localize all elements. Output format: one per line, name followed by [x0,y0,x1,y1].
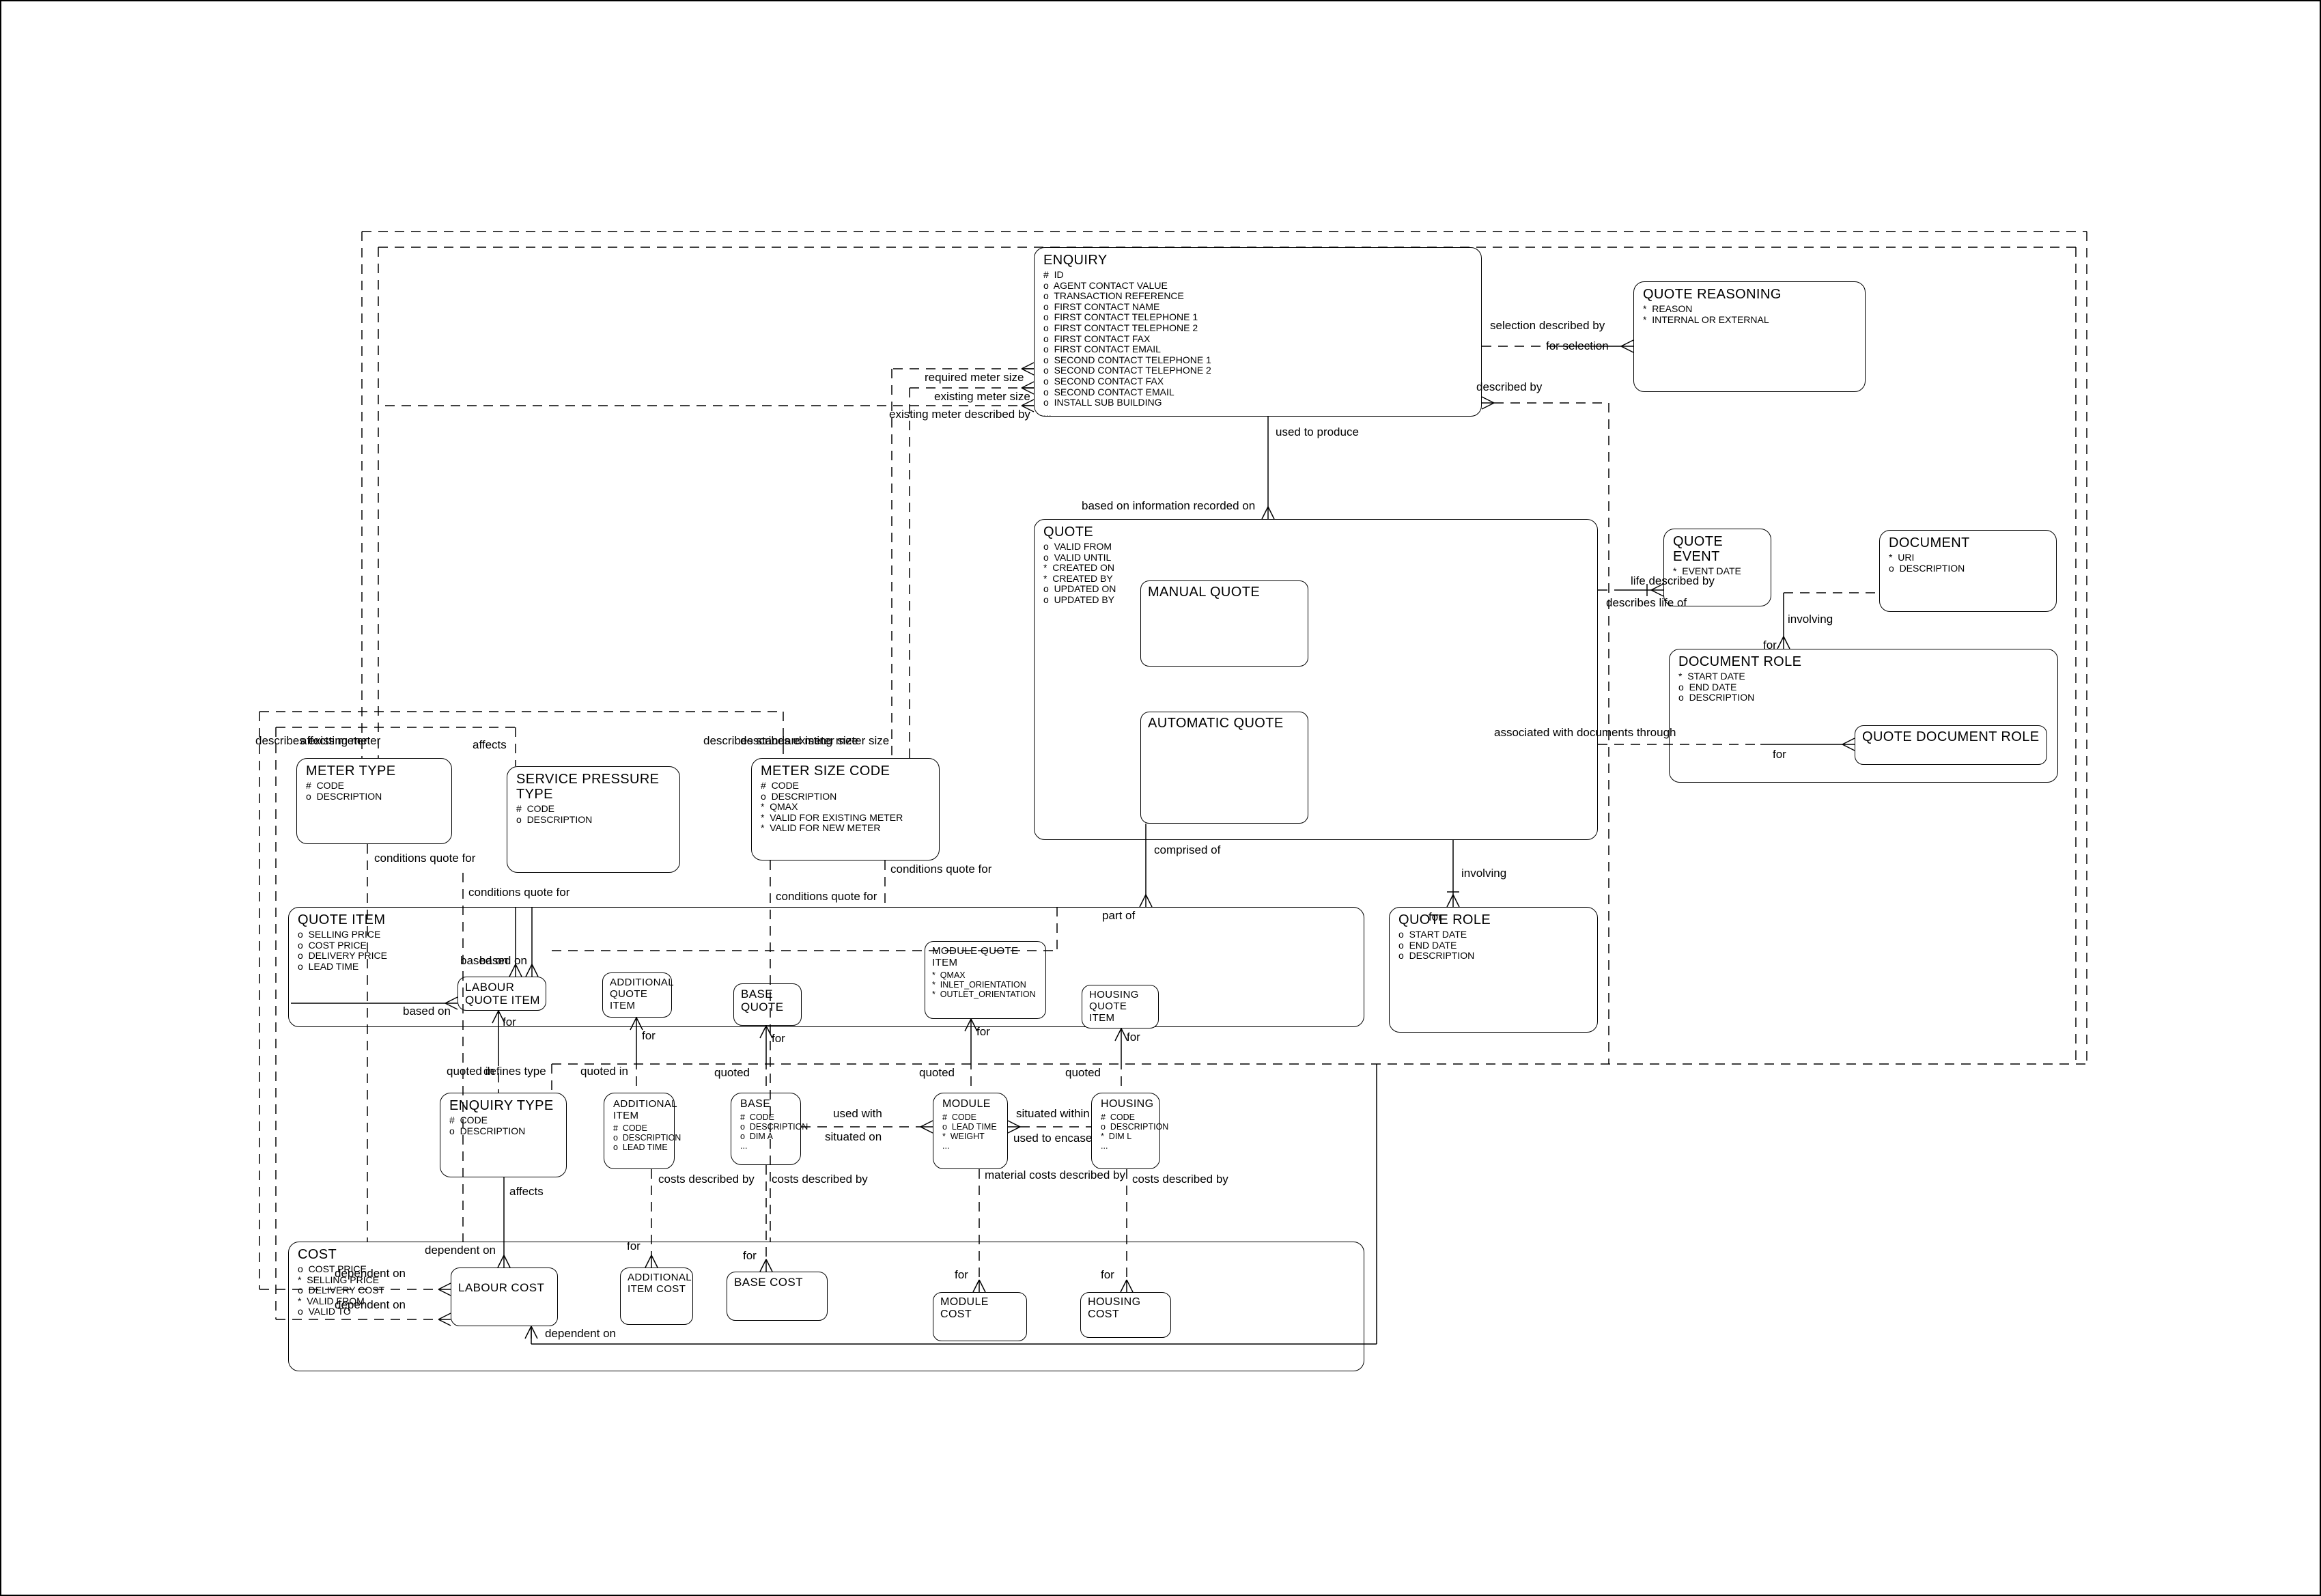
entity-attribute: # ID [1043,270,1476,281]
entity-attribute: o VALID FROM [1043,542,1592,552]
entity-quote: QUOTE o VALID FROMo VALID UNTIL* CREATED… [1034,519,1598,840]
relationship-label: comprised of [1154,844,1220,856]
relationship-label: dependent on [335,1268,406,1280]
entity-attribute: * WEIGHT [942,1132,1002,1141]
relationship-label: described by [1476,381,1542,393]
relationship-label: based on information recorded on [1082,500,1255,512]
entity-meter-type: METER TYPE # CODEo DESCRIPTION [296,758,452,844]
relationship-label: for [1763,639,1777,652]
entity-title: SERVICE PRESSURE TYPE [516,772,674,802]
entity-attribute: o DESCRIPTION [761,792,933,802]
entity-attributes: o SELLING PRICEo COST PRICEo DELIVERY PR… [298,929,1358,972]
relationship-label: selection described by [1490,320,1605,332]
entity-title: QUOTE ITEM [298,912,1358,927]
relationship-label: existing meter size [934,391,1030,403]
er-diagram-canvas: ENQUIRY # IDo AGENT CONTACT VALUEo TRANS… [0,0,2321,1596]
entity-attribute: ... [1043,408,1476,419]
entity-attributes: # CODEo DESCRIPTION [516,804,674,825]
relationship-label: affects [473,739,507,751]
relationship-label: part of [1102,910,1135,922]
relationship-label: affects [509,1186,544,1198]
relationship-label: affects meter [300,735,367,747]
entity-title: ADDITIONAL QUOTE ITEM [610,977,667,1011]
entity-housing: HOUSING # CODEo DESCRIPTION* DIM L... [1091,1093,1160,1169]
entity-attributes: * START DATEo END DATEo DESCRIPTION [1678,671,2052,703]
entity-attributes: # CODEo DESCRIPTIONo LEAD TIME [613,1123,669,1152]
entity-attribute: o FIRST CONTACT EMAIL [1043,344,1476,355]
entity-meter-size-code: METER SIZE CODE # CODEo DESCRIPTION* QMA… [751,758,940,860]
entity-attribute: o DESCRIPTION [1398,951,1592,962]
relationship-label: costs described by [1132,1173,1228,1186]
entity-additional-item: ADDITIONAL ITEM # CODEo DESCRIPTIONo LEA… [604,1093,675,1169]
entity-module-quote-item: MODULE QUOTE ITEM * QMAX* INLET_ORIENTAT… [925,941,1046,1019]
entity-title: METER SIZE CODE [761,764,933,779]
entity-attribute: * INTERNAL OR EXTERNAL [1643,315,1859,326]
entity-title: LABOUR QUOTE ITEM [465,981,541,1007]
entity-attribute: o UPDATED BY [1043,595,1592,606]
entity-title: MODULE COST [940,1296,1022,1321]
relationship-label: dependent on [545,1328,616,1340]
relationship-label: based on [403,1005,451,1018]
relationship-label: for [976,1026,990,1038]
relationship-label: situated within [1016,1108,1090,1120]
entity-attribute: * START DATE [1678,671,2052,682]
entity-attribute: ... [740,1141,795,1151]
entity-title: BASE COST [734,1276,823,1289]
entity-attribute: o SECOND CONTACT FAX [1043,376,1476,387]
entity-attribute: o END DATE [1678,682,2052,693]
entity-service-pressure-type: SERVICE PRESSURE TYPE # CODEo DESCRIPTIO… [507,766,680,873]
entity-module: MODULE # CODEo LEAD TIME* WEIGHT... [933,1093,1008,1169]
entity-attribute: ... [1101,1141,1154,1151]
relationship-label: associated with documents through [1494,727,1676,739]
entity-attribute: o DESCRIPTION [1101,1122,1154,1132]
relationship-label: used to produce [1276,426,1359,438]
entity-title: HOUSING [1101,1098,1154,1110]
relationship-label: quoted [714,1067,750,1079]
entity-title: HOUSING COST [1088,1296,1166,1321]
entity-attribute: o LEAD TIME [298,962,1358,972]
entity-quote-reasoning: QUOTE REASONING * REASON* INTERNAL OR EX… [1633,281,1866,392]
entity-attribute: o LEAD TIME [613,1143,669,1152]
entity-attribute: o DESCRIPTION [1889,563,2051,574]
entity-attributes: o START DATEo END DATEo DESCRIPTION [1398,929,1592,962]
entity-attribute: ... [942,1141,1002,1151]
entity-attribute: * DIM L [1101,1132,1154,1141]
entity-attribute: # CODE [306,781,446,792]
relationship-label: dependent on [425,1244,496,1257]
relationship-label: required meter size [925,372,1024,384]
entity-title: HOUSING QUOTE ITEM [1089,989,1154,1024]
entity-title: ADDITIONAL ITEM COST [628,1272,688,1295]
relationship-label: used to encase [1013,1132,1092,1145]
relationship-label: used with [833,1108,882,1120]
entity-attribute: o AGENT CONTACT VALUE [1043,281,1476,292]
relationship-label: for [955,1269,968,1281]
relationship-label: quoted [919,1067,955,1079]
relationship-label: dependent on [335,1299,406,1311]
entity-title: MODULE QUOTE ITEM [932,945,1041,968]
entity-module-cost: MODULE COST [933,1292,1027,1341]
entity-attribute: # CODE [1101,1112,1154,1122]
entity-attribute: # CODE [761,781,933,792]
relationship-label: life described by [1631,575,1715,587]
entity-attributes: # CODEo DESCRIPTION* QMAX* VALID FOR EXI… [761,781,933,834]
entity-attribute: o SECOND CONTACT EMAIL [1043,387,1476,398]
entity-attribute: o VALID UNTIL [1043,552,1592,563]
entity-base-cost: BASE COST [727,1272,828,1321]
entity-base-quote: BASE QUOTE [733,983,802,1026]
entity-manual-quote: MANUAL QUOTE [1140,580,1308,667]
entity-attribute: o FIRST CONTACT TELEPHONE 2 [1043,323,1476,334]
relationship-label: costs described by [658,1173,755,1186]
entity-attributes: # CODEo DESCRIPTION* DIM L... [1101,1112,1154,1151]
entity-attributes: * URIo DESCRIPTION [1889,552,2051,574]
relationship-label: for [1101,1269,1114,1281]
entity-attribute: # CODE [740,1112,795,1122]
entity-attribute: o DESCRIPTION [613,1133,669,1143]
entity-attribute: o END DATE [1398,940,1592,951]
entity-attribute: o UPDATED ON [1043,584,1592,595]
entity-title: QUOTE DOCUMENT ROLE [1862,729,2042,744]
entity-additional-item-cost: ADDITIONAL ITEM COST [620,1268,693,1325]
entity-attribute: o COST PRICE [298,940,1358,951]
entity-title: QUOTE EVENT [1673,534,1765,564]
entity-attribute: * VALID FOR EXISTING METER [761,813,933,824]
entity-title: BASE QUOTE [741,988,797,1013]
relationship-label: for [627,1240,641,1252]
entity-quote-role: QUOTE ROLE o START DATEo END DATEo DESCR… [1389,907,1598,1033]
entity-attribute: * QMAX [761,802,933,813]
entity-title: METER TYPE [306,764,446,779]
relationship-label: situated on [825,1131,882,1143]
entity-attribute: o DIM A [740,1132,795,1141]
entity-attribute: # CODE [613,1123,669,1133]
entity-title: ENQUIRY TYPE [449,1098,561,1113]
relationship-label: based on [479,955,527,967]
entity-title: BASE [740,1098,795,1110]
entity-title: QUOTE ROLE [1398,912,1592,927]
entity-attribute: o DESCRIPTION [740,1122,795,1132]
entity-document: DOCUMENT * URIo DESCRIPTION [1879,530,2057,612]
entity-attributes: o VALID FROMo VALID UNTIL* CREATED ON* C… [1043,542,1592,606]
entity-attribute: o SELLING PRICE [298,929,1358,940]
entity-attribute: o START DATE [1398,929,1592,940]
entity-attribute: o DESCRIPTION [1678,692,2052,703]
entity-attribute: * INLET_ORIENTATION [932,980,1041,990]
relationship-label: for [642,1030,656,1042]
relationship-label: conditions quote for [374,852,475,865]
entity-attribute: * CREATED BY [1043,574,1592,585]
entity-labour-cost: LABOUR COST [451,1268,558,1326]
entity-attributes: # CODEo LEAD TIME* WEIGHT... [942,1112,1002,1151]
entity-additional-quote-item: ADDITIONAL QUOTE ITEM [602,972,672,1018]
entity-attribute: * URI [1889,552,2051,563]
entity-attribute: o TRANSACTION REFERENCE [1043,291,1476,302]
entity-base: BASE # CODEo DESCRIPTIONo DIM A... [731,1093,801,1165]
entity-title: DOCUMENT ROLE [1678,654,2052,669]
relationship-label: for [503,1016,516,1028]
entity-attribute: o DESCRIPTION [449,1126,561,1137]
entity-attribute: * REASON [1643,304,1859,315]
relationship-label: costs described by [772,1173,868,1186]
entity-attribute: o DESCRIPTION [306,792,446,802]
relationship-label: describes life of [1606,597,1687,609]
relationship-label: for [772,1033,785,1045]
entity-title: ADDITIONAL ITEM [613,1098,669,1121]
entity-attribute: # CODE [516,804,674,815]
entity-title: ENQUIRY [1043,253,1476,268]
entity-title: DOCUMENT [1889,535,2051,550]
entity-title: AUTOMATIC QUOTE [1148,716,1304,731]
entity-enquiry-type: ENQUIRY TYPE # CODEo DESCRIPTION [440,1093,567,1177]
relationship-label: material costs described by [985,1169,1125,1181]
relationship-label: for [1429,911,1442,923]
entity-attributes: * QMAX* INLET_ORIENTATION* OUTLET_ORIENT… [932,970,1041,999]
relationship-label: for [743,1250,757,1262]
entity-attribute: * OUTLET_ORIENTATION [932,990,1041,999]
relationship-label: quoted in [580,1065,628,1078]
entity-labour-quote-item: LABOUR QUOTE ITEM [458,977,546,1011]
relationship-label: involving [1461,867,1506,880]
relationship-label: involving [1788,613,1833,626]
entity-attributes: # CODEo DESCRIPTION [306,781,446,802]
entity-title: MODULE [942,1098,1002,1110]
entity-attribute: * VALID FOR NEW METER [761,823,933,834]
relationship-label: conditions quote for [468,886,569,899]
entity-housing-cost: HOUSING COST [1080,1292,1171,1338]
entity-housing-quote-item: HOUSING QUOTE ITEM [1082,985,1159,1028]
entity-attributes: # CODEo DESCRIPTION [449,1115,561,1136]
entity-enquiry: ENQUIRY # IDo AGENT CONTACT VALUEo TRANS… [1034,247,1482,417]
entity-attribute: o DELIVERY PRICE [298,951,1358,962]
entity-attribute: # CODE [942,1112,1002,1122]
entity-title: LABOUR COST [458,1281,553,1294]
entity-attribute: o FIRST CONTACT NAME [1043,302,1476,313]
relationship-label: conditions quote for [776,891,877,903]
relationship-label: for [1773,748,1786,761]
relationship-label: for [1127,1031,1140,1044]
entity-title: QUOTE [1043,524,1592,540]
relationship-label: existing meter described by [889,408,1030,421]
entity-attribute: * QMAX [932,970,1041,980]
entity-attribute: # CODE [449,1115,561,1126]
entity-attributes: * REASON* INTERNAL OR EXTERNAL [1643,304,1859,325]
entity-attribute: * CREATED ON [1043,563,1592,574]
entity-quote-event: QUOTE EVENT * EVENT DATE [1663,529,1771,606]
entity-attribute: o SECOND CONTACT TELEPHONE 1 [1043,355,1476,366]
relationship-label: defines type [483,1065,546,1078]
entity-automatic-quote: AUTOMATIC QUOTE [1140,712,1308,824]
entity-attribute: o SECOND CONTACT TELEPHONE 2 [1043,365,1476,376]
entity-attribute: o INSTALL SUB BUILDING [1043,397,1476,408]
entity-title: MANUAL QUOTE [1148,585,1304,600]
entity-attributes: # CODEo DESCRIPTIONo DIM A... [740,1112,795,1151]
relationship-label: quoted [1065,1067,1101,1079]
entity-attribute: o DESCRIPTION [516,815,674,826]
relationship-label: for selection [1546,340,1609,352]
entity-title: QUOTE REASONING [1643,287,1859,302]
entity-quote-document-role: QUOTE DOCUMENT ROLE [1855,725,2047,765]
entity-attribute: o FIRST CONTACT TELEPHONE 1 [1043,312,1476,323]
entity-attributes: # IDo AGENT CONTACT VALUEo TRANSACTION R… [1043,270,1476,419]
entity-attribute: o FIRST CONTACT FAX [1043,334,1476,345]
relationship-label: conditions quote for [890,863,991,876]
relationship-label: describes existing meter size [740,735,889,747]
entity-attribute: o LEAD TIME [942,1122,1002,1132]
